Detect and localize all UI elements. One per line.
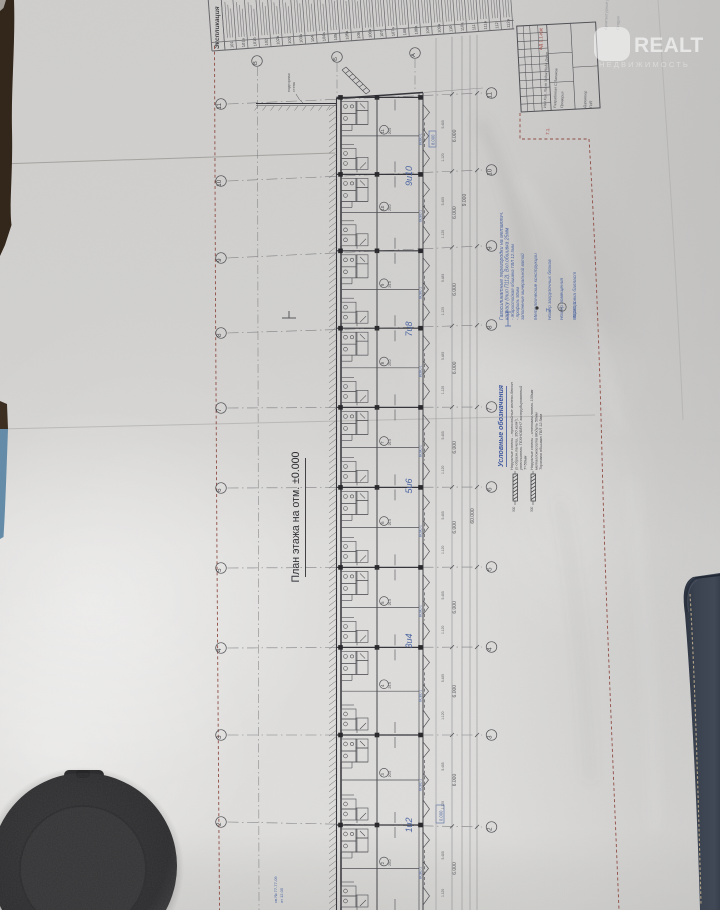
svg-text:REALT: REALT bbox=[634, 34, 703, 57]
svg-text:НЕДВИЖИМОСТЬ: НЕДВИЖИМОСТЬ bbox=[599, 60, 690, 69]
